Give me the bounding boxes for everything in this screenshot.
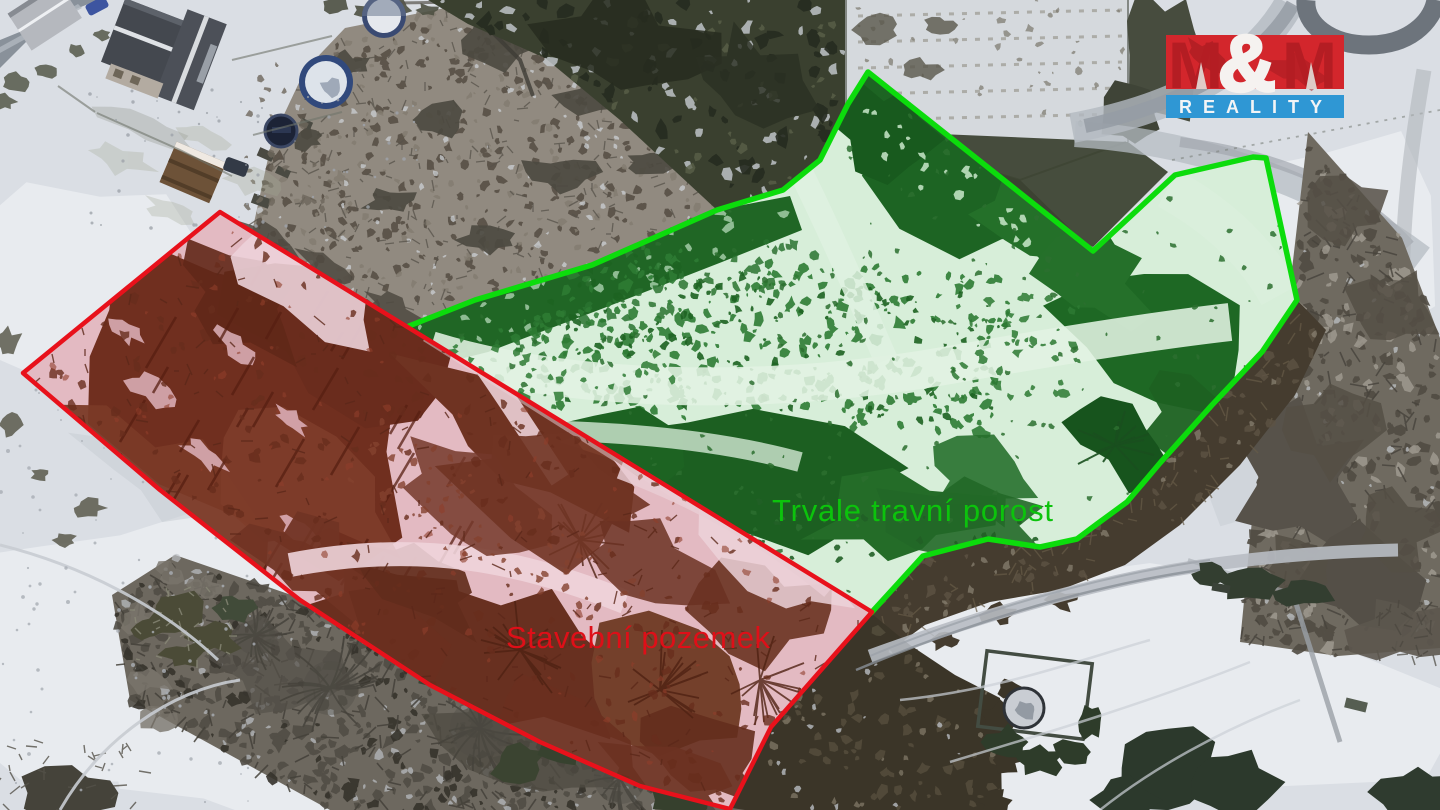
- svg-text:REALITY: REALITY: [1179, 97, 1333, 117]
- svg-text:Trvale travní porost: Trvale travní porost: [772, 493, 1053, 528]
- svg-text:Stavební pozemek: Stavební pozemek: [506, 620, 771, 655]
- svg-text:&: &: [1218, 19, 1276, 108]
- svg-text:M: M: [1168, 28, 1223, 102]
- svg-text:M: M: [1282, 28, 1337, 102]
